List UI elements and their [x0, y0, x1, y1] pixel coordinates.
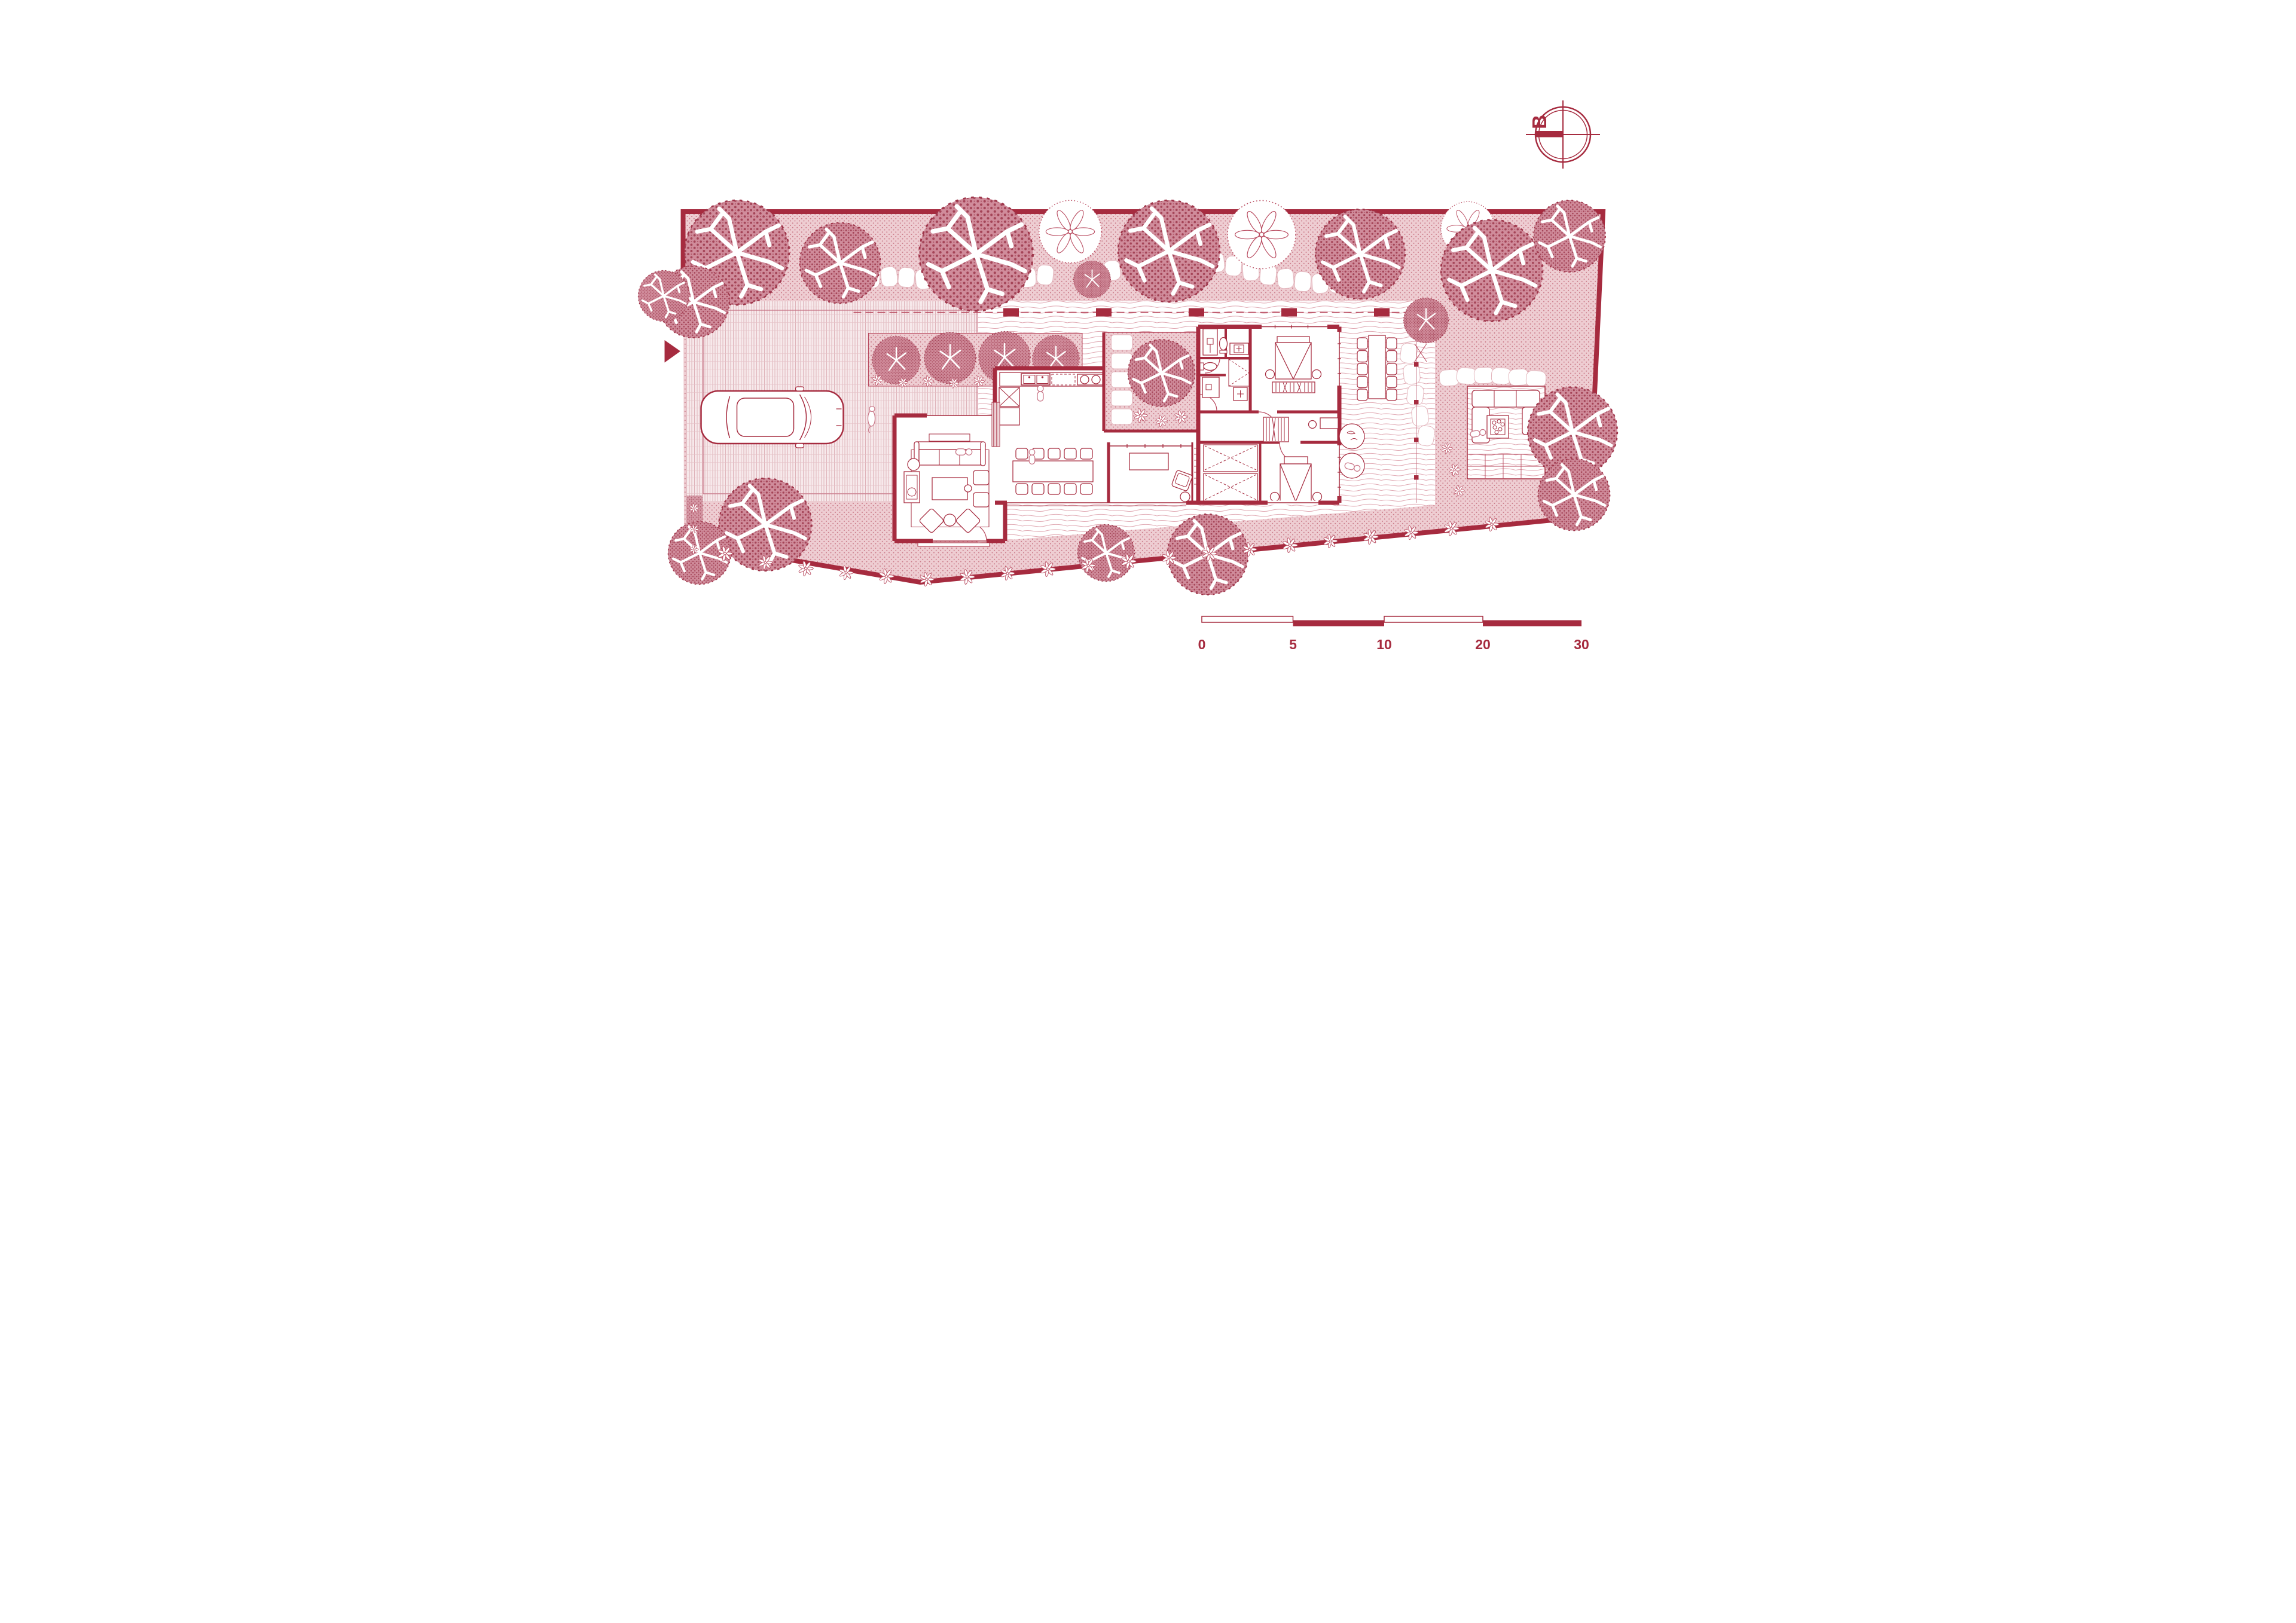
scale-label-20: 20	[1475, 637, 1491, 652]
coffee-table	[932, 478, 967, 500]
toilet-1	[1220, 338, 1228, 354]
side-table	[964, 485, 972, 492]
entry-arrow	[665, 340, 681, 363]
vanity-1	[1230, 343, 1248, 354]
cooktop	[1077, 374, 1103, 385]
pantry-unit	[999, 387, 1019, 425]
scale-label-10: 10	[1376, 637, 1392, 652]
master-bed	[1275, 343, 1311, 379]
bed-headboard	[1284, 457, 1308, 464]
terrace-column	[1414, 400, 1419, 405]
tv-console	[1129, 453, 1168, 470]
compass-letter: B	[1528, 115, 1550, 129]
outdoor-dining-set	[1357, 335, 1397, 401]
threshold-step	[918, 543, 990, 546]
armchair	[973, 470, 989, 485]
stool	[1309, 421, 1317, 429]
terrace-column	[1414, 475, 1419, 480]
slat-bench	[1263, 417, 1289, 442]
nightstand	[1266, 370, 1275, 379]
outdoor-dining-table	[1369, 335, 1385, 399]
side-cabinet	[904, 472, 920, 503]
shower-1	[1203, 329, 1217, 355]
dining-area	[1013, 448, 1093, 494]
internal-courtyard	[1104, 332, 1198, 431]
desk	[1320, 418, 1338, 429]
scale-label-5: 5	[1289, 637, 1297, 652]
site-plan-drawing: B 0 5 10 20 30	[574, 0, 1722, 812]
fire-pit	[1487, 415, 1509, 438]
dishwasher	[1052, 374, 1075, 385]
person-sofa	[955, 449, 972, 456]
armchair	[973, 493, 989, 507]
nightstand	[1312, 370, 1321, 379]
terrace-column	[1414, 362, 1419, 367]
person-kitchen	[1037, 386, 1043, 401]
terrace-column	[1414, 438, 1419, 442]
scale-label-0: 0	[1198, 637, 1206, 652]
bed-headboard	[1277, 337, 1309, 343]
slatted-bench	[1272, 382, 1315, 393]
shower-2	[1202, 377, 1219, 398]
nightstand	[1271, 493, 1280, 502]
fence-post	[1281, 308, 1297, 317]
scale-bar: 0 5 10 20 30	[1198, 616, 1589, 652]
linen-closet	[1229, 359, 1249, 386]
fence-post	[1003, 308, 1019, 317]
round-table	[908, 459, 920, 470]
toilet-2	[1200, 363, 1217, 371]
fence-post	[1374, 308, 1390, 317]
compass: B	[1526, 100, 1600, 169]
scale-label-30: 30	[1574, 637, 1589, 652]
round-table	[944, 514, 956, 526]
bed	[1280, 464, 1311, 502]
car	[701, 387, 844, 448]
side-table	[1180, 492, 1190, 502]
nightstand	[1313, 493, 1322, 502]
vanity-2	[1234, 387, 1247, 401]
person-dining	[1029, 450, 1035, 464]
kitchen-sink	[1021, 374, 1050, 385]
compass-needle	[1536, 131, 1563, 137]
dining-table	[1013, 461, 1093, 482]
fence-post	[1189, 308, 1204, 317]
fence-post	[1096, 308, 1112, 317]
louvre-screen	[992, 402, 1000, 447]
plan-page: B 0 5 10 20 30	[574, 0, 1722, 812]
